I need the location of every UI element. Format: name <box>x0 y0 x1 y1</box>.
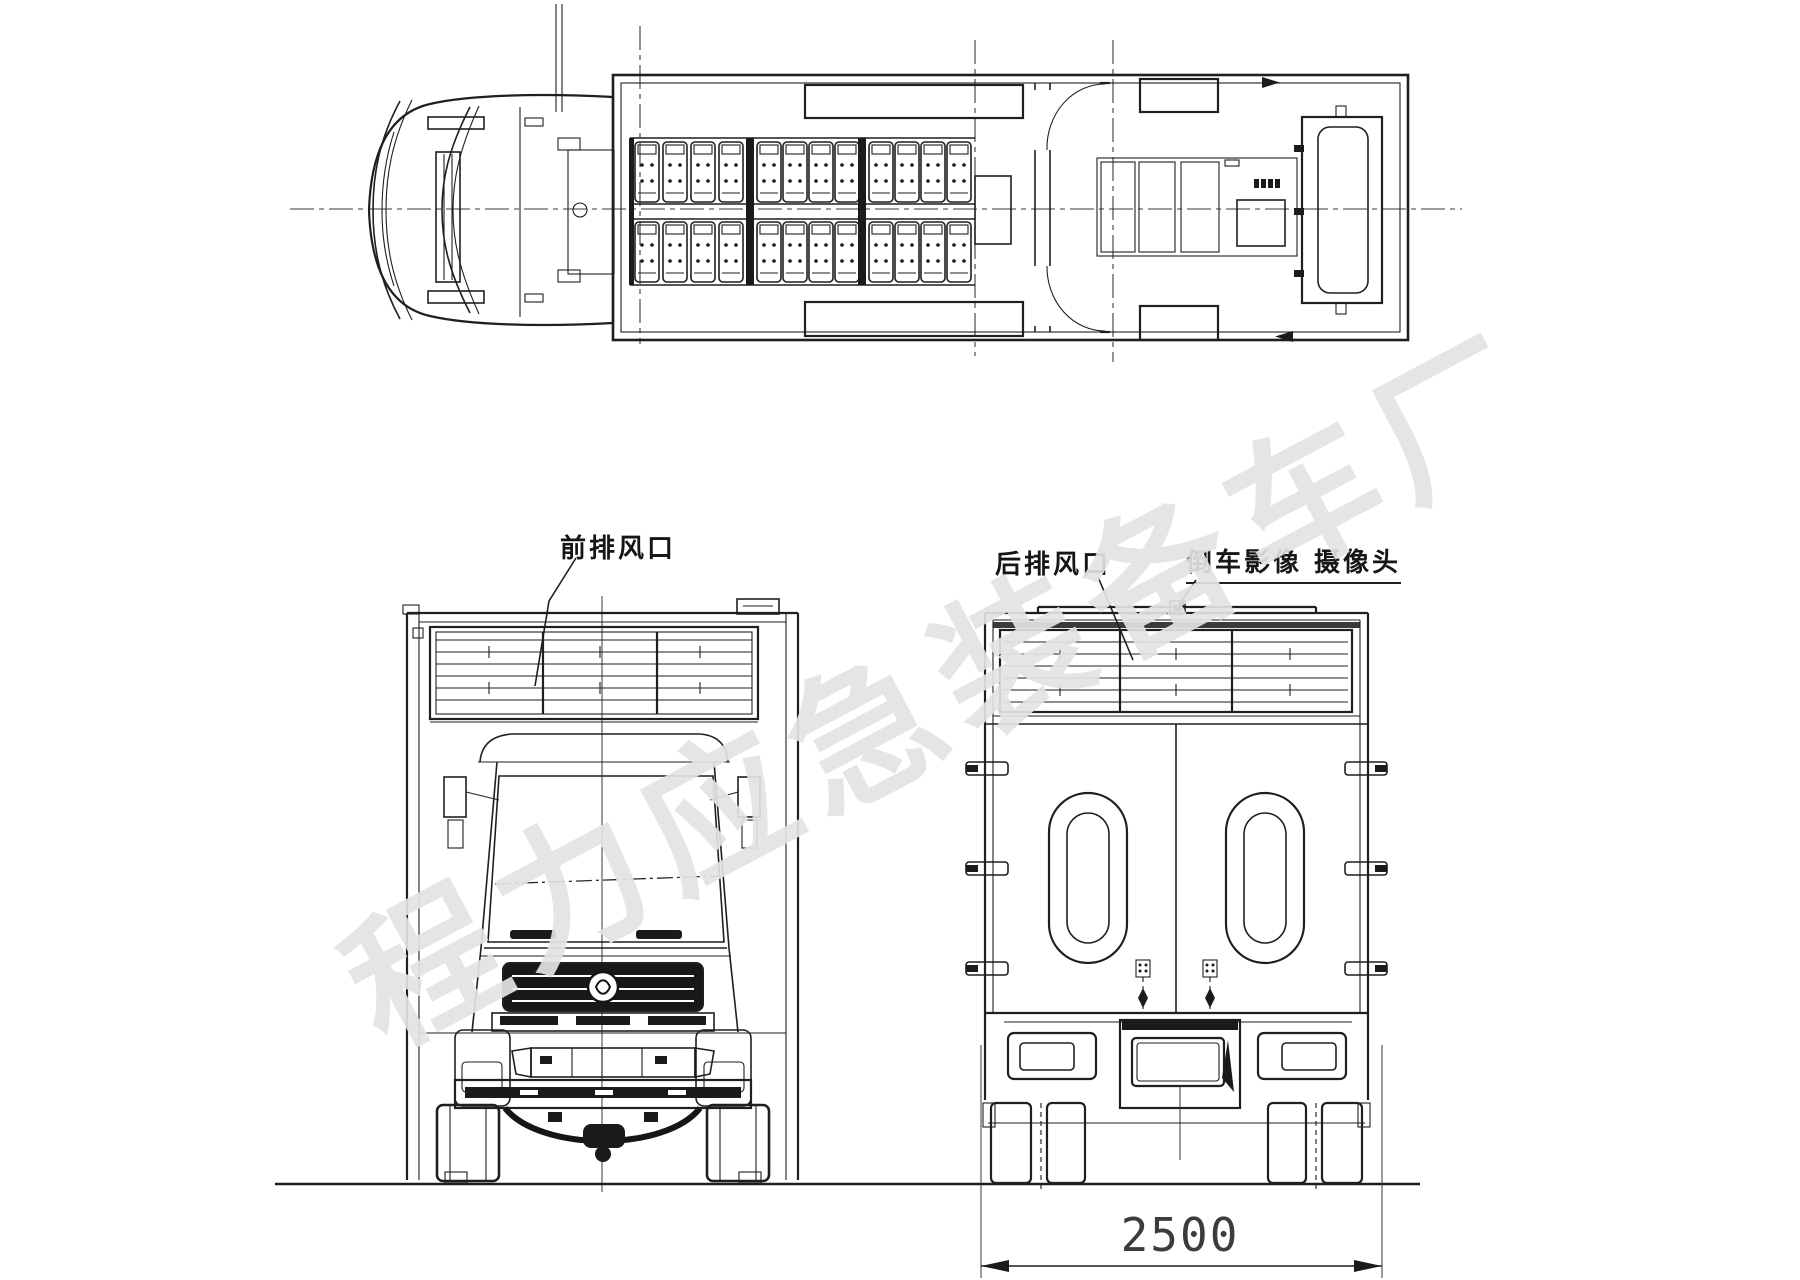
cab-plan <box>369 95 614 325</box>
door-swing-arc-bottom <box>1047 266 1105 331</box>
dimension-arrow-right <box>1354 1260 1382 1272</box>
top-view <box>290 4 1462 362</box>
grille <box>503 963 703 1011</box>
partition-and-doors <box>1035 83 1110 332</box>
front-louver-vent <box>430 627 758 722</box>
rear-view <box>966 577 1387 1190</box>
truck-three-view-drawing <box>0 0 1800 1280</box>
rear-vent-leader <box>1098 577 1133 660</box>
equipment-console-plan <box>1097 158 1297 256</box>
rear-louver-vent <box>985 630 1368 724</box>
rear-bumper-area <box>985 1013 1368 1160</box>
left-tail-lamp <box>1008 1033 1096 1079</box>
front-view <box>403 558 798 1192</box>
rear-mudflaps <box>983 1103 1370 1190</box>
dimension-value-2500: 2500 <box>1040 1208 1320 1262</box>
right-door-handle-recess <box>1226 793 1304 963</box>
wiper <box>510 930 556 939</box>
right-tail-lamp <box>1258 1033 1346 1079</box>
label-reversing-camera: 倒车影像 摄像头 <box>1186 542 1401 584</box>
engineering-drawing-canvas: 前排风口 后排风口 倒车影像 摄像头 2500 程力应急装备车厂 <box>0 0 1800 1280</box>
wiper <box>636 930 682 939</box>
dimension-arrow-left <box>981 1260 1009 1272</box>
engine-detail-hatch <box>568 150 614 274</box>
right-mirror <box>738 777 760 817</box>
door-swing-arc-top <box>1047 84 1105 150</box>
label-front-vent: 前排风口 <box>560 528 676 565</box>
rear-frame-plan <box>1294 106 1382 314</box>
brand-logo <box>588 972 618 1002</box>
headlight-band <box>531 1048 695 1077</box>
left-door-handle-recess <box>1049 793 1127 963</box>
label-rear-vent: 后排风口 <box>995 544 1111 581</box>
windshield <box>488 776 724 942</box>
rear-doors <box>966 724 1387 1013</box>
seat-rows-plan <box>629 138 1011 285</box>
step-well <box>975 176 1011 244</box>
left-mirror <box>444 777 466 817</box>
